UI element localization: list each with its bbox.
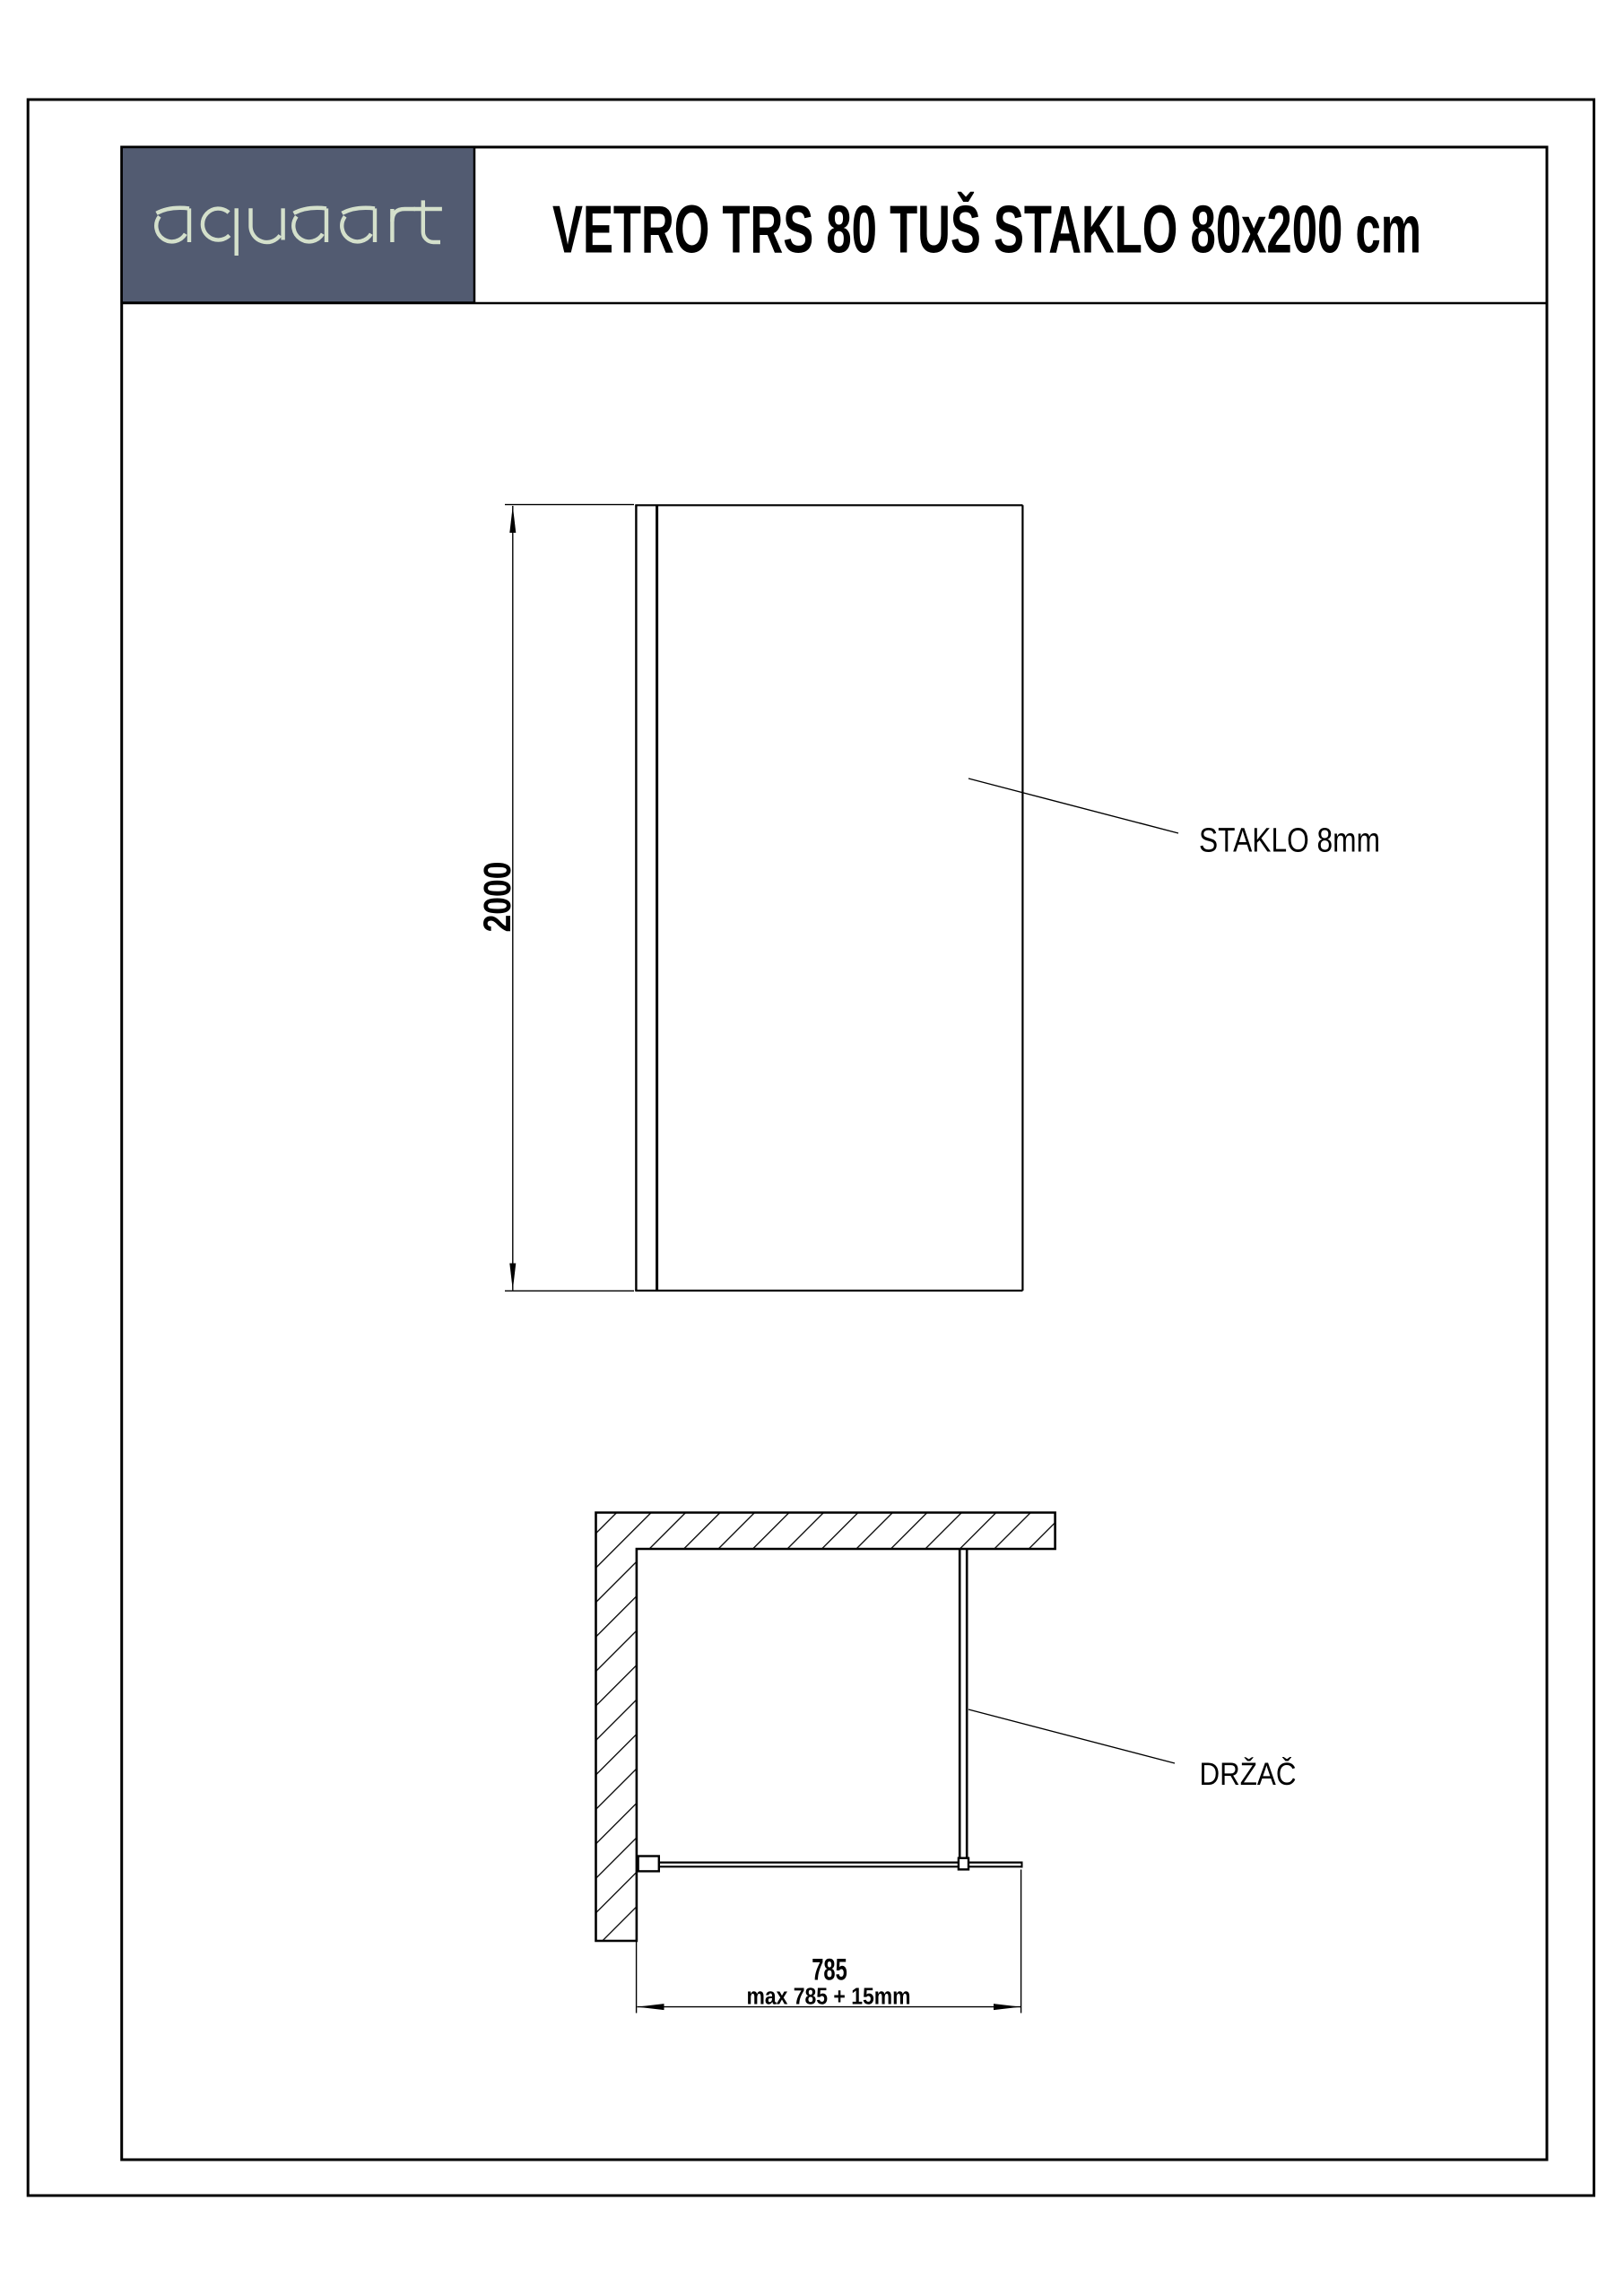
svg-text:STAKLO 8mm: STAKLO 8mm: [1199, 822, 1380, 860]
svg-text:VETRO TRS 80 TUŠ STAKLO 80x200: VETRO TRS 80 TUŠ STAKLO 80x200 cm: [552, 192, 1421, 268]
svg-text:2000: 2000: [476, 862, 518, 933]
svg-text:DRŽAČ: DRŽAČ: [1200, 1757, 1297, 1792]
svg-text:max 785 + 15mm: max 785 + 15mm: [747, 1982, 911, 2009]
